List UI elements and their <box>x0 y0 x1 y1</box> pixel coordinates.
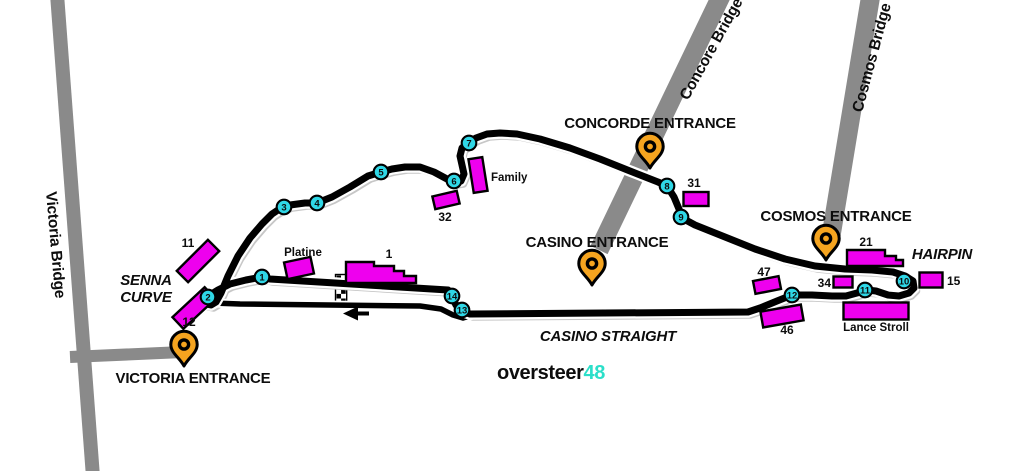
turn-marker-9: 9 <box>674 210 689 225</box>
turn-marker-number-12: 12 <box>787 290 798 301</box>
turn-marker-number-9: 9 <box>678 212 683 223</box>
circuit-map-svg: Victoria BridgeConcore BridgeCosmos Brid… <box>0 0 1024 471</box>
grandstand-label-15: 15 <box>947 274 961 288</box>
turn-marker-7: 7 <box>462 136 477 151</box>
turn-marker-number-8: 8 <box>664 181 669 192</box>
grandstand-family <box>468 157 487 193</box>
grandstand-label-12: 12 <box>182 315 196 329</box>
turn-marker-10: 10 <box>897 274 912 289</box>
bridge-label-victoria: Victoria Bridge <box>42 191 68 300</box>
turn-marker-number-6: 6 <box>451 176 456 187</box>
turn-marker-number-7: 7 <box>466 138 471 149</box>
turn-marker-4: 4 <box>310 196 325 211</box>
turn-marker-13: 13 <box>455 303 470 318</box>
entrance-pin-victoria <box>171 331 197 366</box>
corner-label-senna-curve: SENNA <box>120 272 172 289</box>
turn-marker-14: 14 <box>445 289 460 304</box>
corner-label-senna-curve: CURVE <box>120 289 173 306</box>
entrance-label-concorde: CONCORDE ENTRANCE <box>564 115 736 132</box>
grandstand-label-47: 47 <box>757 265 771 279</box>
grandstand-label-21: 21 <box>859 235 873 249</box>
grandstand-label-platine: Platine <box>284 247 322 259</box>
entrance-pin-casino <box>579 250 605 285</box>
grandstand-label-11: 11 <box>182 236 195 250</box>
turn-marker-number-14: 14 <box>447 291 458 302</box>
turn-marker-number-3: 3 <box>281 202 286 213</box>
turn-marker-11: 11 <box>858 283 873 298</box>
bridge-road-victoria-access <box>70 352 183 357</box>
grandstand-34 <box>834 277 853 288</box>
start-finish-grid-cell <box>337 294 342 299</box>
turn-marker-number-5: 5 <box>378 167 384 178</box>
grandstand-32 <box>432 191 459 209</box>
logo-oversteer48: oversteer48 <box>497 362 605 384</box>
turn-marker-number-11: 11 <box>860 285 871 296</box>
grandstand-label-family: Family <box>491 172 528 184</box>
grandstand-15 <box>920 273 943 288</box>
entrance-pin-cosmos <box>813 225 839 260</box>
pit-lane <box>213 303 473 318</box>
turn-marker-number-4: 4 <box>314 198 320 209</box>
turn-marker-5: 5 <box>374 165 389 180</box>
turn-marker-8: 8 <box>660 179 675 194</box>
entrance-label-victoria: VICTORIA ENTRANCE <box>116 370 271 387</box>
entrance-label-cosmos: COSMOS ENTRANCE <box>760 208 911 225</box>
grandstand-label-34: 34 <box>818 276 832 290</box>
turn-marker-1: 1 <box>255 270 270 285</box>
corner-label-hairpin: HAIRPIN <box>912 246 974 263</box>
bridge-road-cosmos <box>831 0 871 236</box>
turn-marker-12: 12 <box>785 288 800 303</box>
turn-marker-number-1: 1 <box>259 272 265 283</box>
turn-marker-number-2: 2 <box>205 292 210 303</box>
start-finish-grid-cell <box>337 289 342 294</box>
turn-marker-number-13: 13 <box>457 305 468 316</box>
circuit-map: Victoria BridgeConcore BridgeCosmos Brid… <box>0 0 1024 471</box>
turn-marker-2: 2 <box>201 290 216 305</box>
grandstand-31 <box>684 192 709 206</box>
start-finish-grid-cell <box>341 294 346 299</box>
grandstand-label-lance-stroll: Lance Stroll <box>843 322 909 334</box>
grandstand-label-1: 1 <box>386 247 393 261</box>
grandstand-label-32: 32 <box>438 210 452 224</box>
grandstand-label-46: 46 <box>780 323 794 337</box>
entrance-label-casino: CASINO ENTRANCE <box>526 234 669 251</box>
corner-label-casino-straight: CASINO STRAIGHT <box>540 328 678 345</box>
turn-marker-number-10: 10 <box>899 276 910 287</box>
grandstand-21 <box>847 250 903 266</box>
grandstand-label-31: 31 <box>687 176 701 190</box>
grandstand-1 <box>346 262 416 283</box>
grandstand-lance-stroll <box>844 303 909 320</box>
turn-marker-3: 3 <box>277 200 292 215</box>
turn-marker-6: 6 <box>447 174 462 189</box>
